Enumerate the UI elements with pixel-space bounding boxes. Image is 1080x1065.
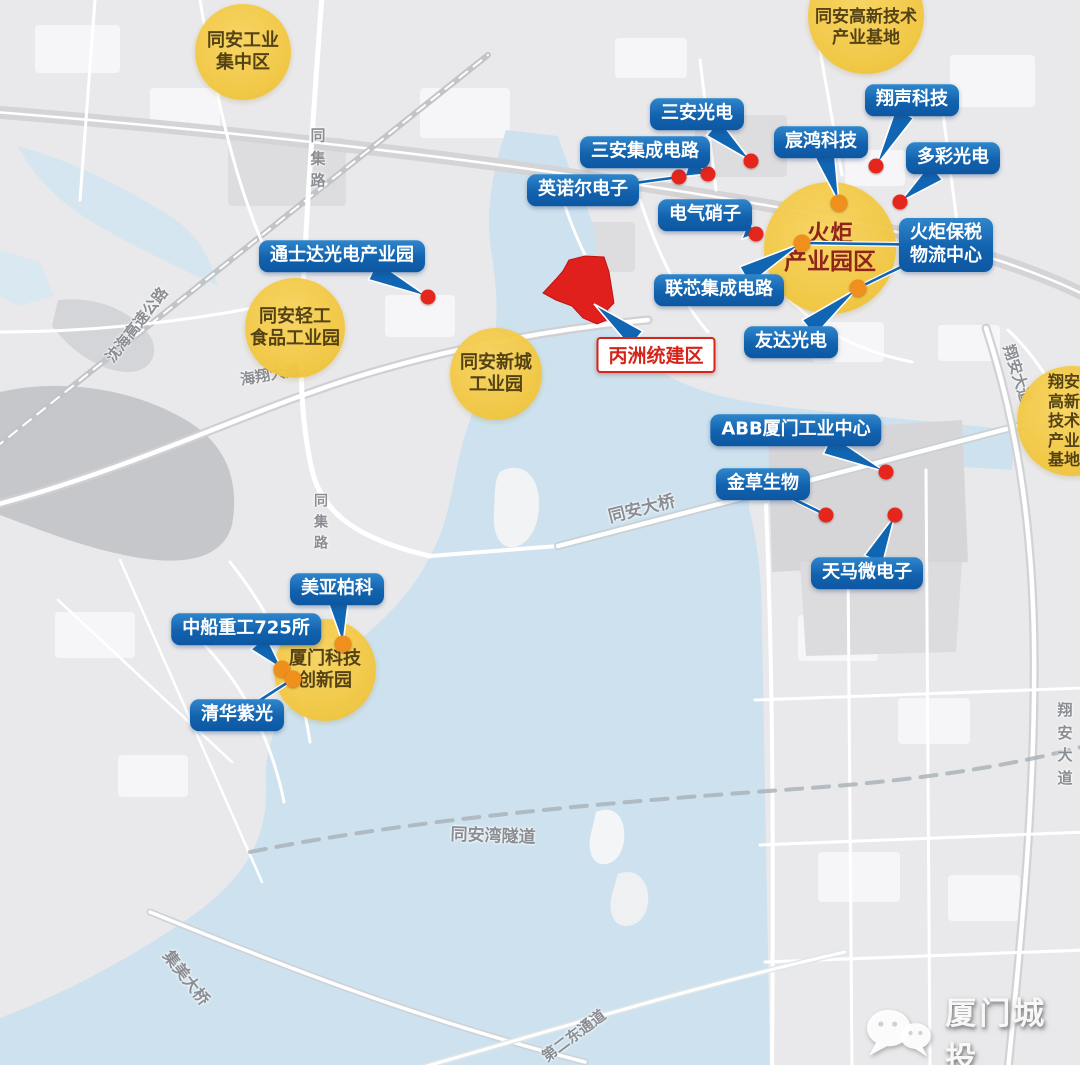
map-canvas: 同 集 路沈海高速公路海翔大道同 集 路同安大桥同安湾隧道集美大桥第二东通道翔安… xyxy=(0,0,1080,1065)
watermark-text: 厦门城投 xyxy=(945,988,1080,1065)
wechat-bubbles-icon xyxy=(862,1006,935,1060)
industrial-block-east-2 xyxy=(800,562,962,656)
base-map xyxy=(0,0,1080,1065)
watermark: 厦门城投 xyxy=(862,988,1080,1065)
